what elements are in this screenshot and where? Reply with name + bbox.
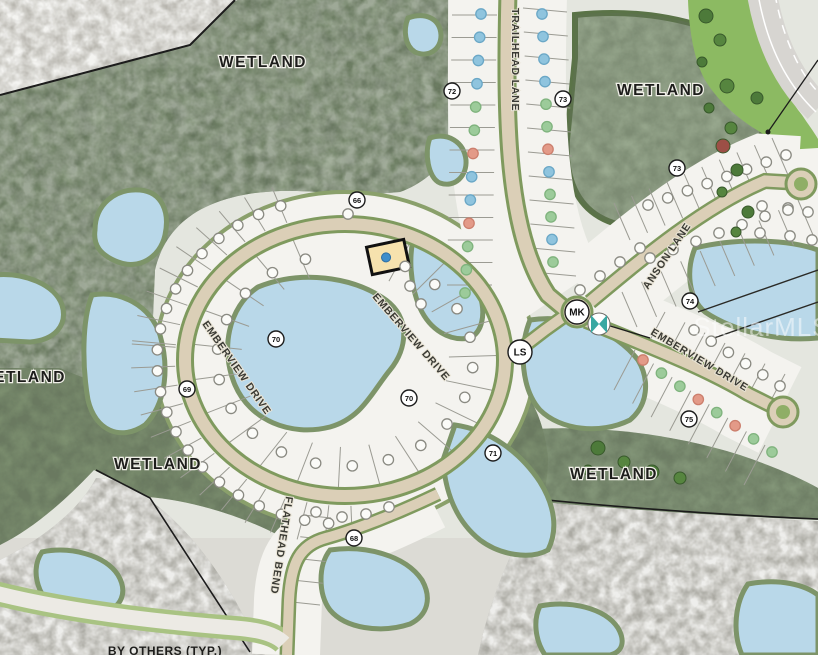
lake xyxy=(405,16,441,54)
site-plan-svg: 7273667374757069707168MKLS WETLANDWETLAN… xyxy=(0,0,818,655)
lot-dot-o xyxy=(226,403,236,413)
lot-dot-o xyxy=(267,267,277,277)
key-marker-text: 66 xyxy=(353,196,361,205)
pond xyxy=(736,582,818,655)
lot-dot-o xyxy=(247,428,257,438)
lot-dot-o xyxy=(343,209,353,219)
key-marker-69: 69 xyxy=(179,381,195,397)
key-marker-73: 73 xyxy=(555,91,571,107)
lot-dot-o xyxy=(337,512,347,522)
lot-dot-o xyxy=(253,209,263,219)
lot-dot-o xyxy=(276,201,286,211)
lot-dot-o xyxy=(691,236,701,246)
key-marker-text: MK xyxy=(569,308,585,319)
lot-dot-o xyxy=(781,150,791,160)
lot-dot-o xyxy=(276,447,286,457)
lot-dot-g xyxy=(548,257,558,267)
key-marker-mk: MK xyxy=(565,300,589,324)
lake xyxy=(427,136,466,184)
key-marker-text: 73 xyxy=(559,95,567,104)
lot-dot-g xyxy=(470,102,480,112)
area-label: WETLAND xyxy=(617,82,705,99)
lot-dot-g xyxy=(460,288,470,298)
lot-dot-o xyxy=(430,279,440,289)
lot-dot-r xyxy=(730,421,740,431)
lot-dot-t xyxy=(473,55,483,65)
lot-dot-o xyxy=(723,347,733,357)
lot-dot-o xyxy=(310,458,320,468)
key-marker-text: 70 xyxy=(405,394,413,403)
lot-dot-o xyxy=(162,407,172,417)
lot-dot-o xyxy=(635,243,645,253)
lot-dot-o xyxy=(383,455,393,465)
utility-icon xyxy=(588,313,610,335)
lot-dot-t xyxy=(547,234,557,244)
key-marker-72: 72 xyxy=(444,83,460,99)
street-label: TRAILHEAD LANE xyxy=(509,8,521,111)
key-marker-70: 70 xyxy=(401,390,417,406)
lot-dot-o xyxy=(761,157,771,167)
lot-dot-o xyxy=(803,207,813,217)
lot-dot-o xyxy=(757,201,767,211)
lot-dot-g xyxy=(546,212,556,222)
key-marker-text: LS xyxy=(514,348,527,359)
lot-dot-o xyxy=(452,303,462,313)
lot-dot-o xyxy=(152,366,162,376)
key-marker-70: 70 xyxy=(268,331,284,347)
lot-dot-o xyxy=(233,490,243,500)
lot-dot-o xyxy=(416,299,426,309)
lot-dot-o xyxy=(682,186,692,196)
lot-dot-o xyxy=(615,257,625,267)
lot-dot-o xyxy=(467,362,477,372)
tree-icon xyxy=(731,164,743,176)
area-label: WETLAND xyxy=(0,369,66,386)
lot-dot-r xyxy=(543,144,553,154)
key-marker-text: 71 xyxy=(489,449,497,458)
lot-dot-o xyxy=(416,440,426,450)
key-marker-text: 70 xyxy=(272,335,280,344)
tree-icon xyxy=(697,57,707,67)
lot-dot-o xyxy=(155,324,165,334)
lot-dot-o xyxy=(740,358,750,368)
tree-icon xyxy=(704,103,714,113)
lot-dot-o xyxy=(702,178,712,188)
area-label: WETLAND xyxy=(570,466,658,483)
key-marker-68: 68 xyxy=(346,530,362,546)
lot-dot-o xyxy=(405,281,415,291)
tree-icon xyxy=(751,92,763,104)
lot-dot-o xyxy=(361,509,371,519)
lot-dot-t xyxy=(466,172,476,182)
key-marker-text: 75 xyxy=(685,415,693,424)
lot-dot-o xyxy=(714,228,724,238)
lot-dot-o xyxy=(722,171,732,181)
lot-dot-o xyxy=(311,507,321,517)
lot-dot-t xyxy=(472,79,482,89)
lot-dot-o xyxy=(760,211,770,221)
lot-dot-o xyxy=(214,374,224,384)
lot-dot-g xyxy=(675,381,685,391)
key-marker-text: 73 xyxy=(673,164,681,173)
lot-dot-t xyxy=(474,32,484,42)
lot-dot-t xyxy=(538,31,548,41)
lot-dot-o xyxy=(663,193,673,203)
watermark-text: StellarMLS xyxy=(693,312,818,342)
lot-dot-o xyxy=(300,254,310,264)
lot-dot-g xyxy=(712,407,722,417)
lot-dot-g xyxy=(462,241,472,251)
lot-dot-o xyxy=(465,332,475,342)
lot-dot-t xyxy=(537,9,547,19)
lot-dot-o xyxy=(643,200,653,210)
lot-dot-o xyxy=(170,284,180,294)
lot-dot-g xyxy=(656,368,666,378)
tree-icon xyxy=(716,139,730,153)
lot-dot-o xyxy=(197,248,207,258)
key-marker-75: 75 xyxy=(681,411,697,427)
lot-dot-o xyxy=(240,288,250,298)
lot-dot-o xyxy=(775,381,785,391)
lot-dot-g xyxy=(461,265,471,275)
lot-dot-t xyxy=(540,76,550,86)
lot-dot-g xyxy=(545,189,555,199)
lot-dot-o xyxy=(161,303,171,313)
lot-dot-o xyxy=(347,461,357,471)
lot-dot-r xyxy=(464,218,474,228)
lake xyxy=(95,190,167,265)
lot-dot-g xyxy=(748,434,758,444)
tree-icon xyxy=(714,34,726,46)
lot-dot-o xyxy=(785,231,795,241)
lot-dot-g xyxy=(767,447,777,457)
lot-dot-o xyxy=(183,445,193,455)
key-marker-74: 74 xyxy=(682,293,698,309)
lot-dot-o xyxy=(384,502,394,512)
lot-dot-g xyxy=(542,122,552,132)
tree-icon xyxy=(725,122,737,134)
lot-dot-o xyxy=(221,314,231,324)
lot-dot-g xyxy=(469,125,479,135)
tree-icon xyxy=(742,206,754,218)
lot-dot-o xyxy=(171,427,181,437)
area-label: WETLAND xyxy=(219,54,307,71)
lot-dot-t xyxy=(539,54,549,64)
lot-dot-o xyxy=(254,501,264,511)
key-marker-73: 73 xyxy=(669,160,685,176)
key-marker-text: 69 xyxy=(183,385,191,394)
lot-dot-o xyxy=(595,271,605,281)
lot-dot-g xyxy=(541,99,551,109)
tree-icon xyxy=(720,79,734,93)
lot-dot-o xyxy=(233,220,243,230)
lot-dot-o xyxy=(214,477,224,487)
lot-dot-o xyxy=(460,392,470,402)
lot-dot-t xyxy=(544,167,554,177)
lot-dot-o xyxy=(299,515,309,525)
lot-dot-o xyxy=(182,265,192,275)
lot-dot-o xyxy=(575,285,585,295)
lot-dot-o xyxy=(783,205,793,215)
tree-icon xyxy=(591,441,605,455)
key-marker-66: 66 xyxy=(349,192,365,208)
tree-icon xyxy=(717,187,727,197)
lot-dot-r xyxy=(638,355,648,365)
tree-icon xyxy=(674,472,686,484)
area-label: WETLAND xyxy=(114,456,202,473)
tree-icon xyxy=(699,9,713,23)
lot-dot-o xyxy=(645,253,655,263)
key-marker-71: 71 xyxy=(485,445,501,461)
lot-dot-o xyxy=(214,233,224,243)
key-marker-text: 72 xyxy=(448,87,456,96)
key-marker-text: 68 xyxy=(350,534,358,543)
lot-dot-o xyxy=(155,387,165,397)
lot-dot-o xyxy=(755,228,765,238)
tree-icon xyxy=(731,227,741,237)
lot-dot-o xyxy=(400,261,410,271)
key-marker-ls: LS xyxy=(508,340,532,364)
lot-dot-t xyxy=(476,9,486,19)
watermark: StellarMLS xyxy=(693,312,818,342)
lot-dot-o xyxy=(807,235,817,245)
lot-dot-o xyxy=(323,518,333,528)
lot-dot-o xyxy=(758,370,768,380)
key-marker-text: 74 xyxy=(686,297,695,306)
lot-dot-r xyxy=(468,148,478,158)
lot-dot-r xyxy=(693,394,703,404)
site-plan-map: 7273667374757069707168MKLS WETLANDWETLAN… xyxy=(0,0,818,655)
lot-dot-o xyxy=(442,419,452,429)
note-label: BY OTHERS (TYP.) xyxy=(108,644,222,655)
lot-dot-t xyxy=(465,195,475,205)
lot-dot-o xyxy=(152,345,162,355)
